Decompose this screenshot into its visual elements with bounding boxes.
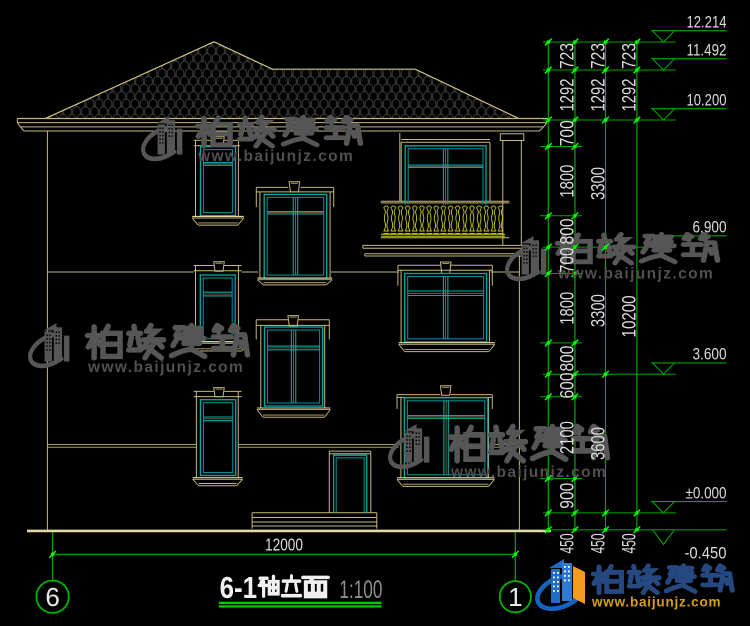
svg-text:800: 800 xyxy=(558,346,579,372)
svg-text:1292: 1292 xyxy=(620,79,641,112)
svg-text:www.baijunjz.com: www.baijunjz.com xyxy=(557,266,714,283)
svg-text:1800: 1800 xyxy=(558,165,579,198)
svg-text:www.baijunjz.com: www.baijunjz.com xyxy=(197,148,354,165)
svg-text:600: 600 xyxy=(558,373,579,399)
svg-text:12.214: 12.214 xyxy=(687,13,727,31)
svg-text:3600: 3600 xyxy=(588,427,609,460)
svg-text:450: 450 xyxy=(588,534,609,554)
svg-text:1292: 1292 xyxy=(558,79,579,112)
svg-text:6: 6 xyxy=(45,582,59,612)
svg-text:450: 450 xyxy=(620,534,641,554)
svg-text:2100: 2100 xyxy=(558,421,579,454)
svg-text:6-1: 6-1 xyxy=(220,570,258,605)
svg-text:10.200: 10.200 xyxy=(687,91,727,109)
svg-text:6.900: 6.900 xyxy=(693,219,727,237)
svg-text:700: 700 xyxy=(558,120,579,146)
svg-text:11.492: 11.492 xyxy=(687,41,727,59)
svg-text:3.600: 3.600 xyxy=(693,346,727,364)
svg-text:www.baijunjz.com: www.baijunjz.com xyxy=(450,464,607,481)
svg-text:800: 800 xyxy=(558,218,579,244)
svg-text:12000: 12000 xyxy=(265,535,303,555)
svg-text:3300: 3300 xyxy=(588,294,609,327)
svg-text:www.baijunjz.com: www.baijunjz.com xyxy=(87,359,244,376)
svg-text:723: 723 xyxy=(620,43,641,69)
svg-text:723: 723 xyxy=(588,43,609,69)
svg-text:1: 1 xyxy=(508,582,522,612)
svg-text:723: 723 xyxy=(558,43,579,69)
svg-text:1292: 1292 xyxy=(588,79,609,112)
svg-text:±0.000: ±0.000 xyxy=(686,484,727,502)
svg-text:900: 900 xyxy=(558,483,579,509)
svg-text:450: 450 xyxy=(558,534,579,554)
svg-text:10200: 10200 xyxy=(620,295,641,337)
svg-text:1:100: 1:100 xyxy=(339,576,382,604)
svg-text:3300: 3300 xyxy=(588,167,609,200)
svg-text:-0.450: -0.450 xyxy=(685,545,727,563)
svg-text:1800: 1800 xyxy=(558,292,579,325)
svg-text:www.baijunjz.com: www.baijunjz.com xyxy=(591,595,721,610)
